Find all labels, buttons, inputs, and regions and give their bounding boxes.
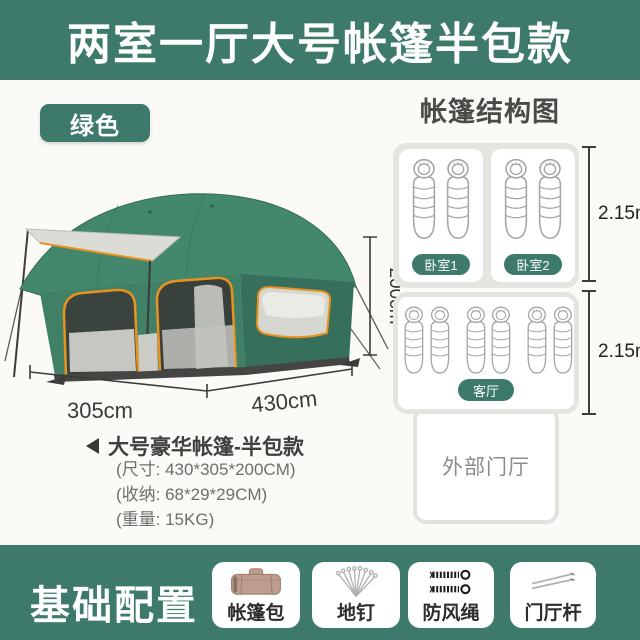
sleeping-bag-icon: [403, 303, 425, 379]
living-room-box: 客厅: [393, 292, 579, 414]
spec-weight: (重量: 15KG): [116, 507, 296, 532]
sleeping-bag-icon: [503, 158, 529, 242]
color-badge-label: 绿色: [70, 106, 120, 141]
config-item-wind-rope: 防风绳: [408, 562, 494, 628]
config-item-stakes: 地钉: [312, 562, 400, 628]
hall-pole-icon: [525, 566, 581, 598]
structure-diagram-title: 帐篷结构图: [400, 90, 580, 129]
triangle-marker-icon: [86, 438, 99, 454]
base-config-banner: 基础配置 帐篷包: [0, 545, 640, 640]
width-label: 305cm: [67, 398, 133, 423]
sleeping-bag-icon: [411, 158, 437, 242]
page-title: 两室一厅大号帐篷半包款: [67, 8, 573, 72]
bedroom-depth-line: [588, 146, 590, 282]
config-label: 帐篷包: [227, 598, 284, 625]
sleeping-bag-icon: [429, 303, 451, 379]
bedroom1-label: 卧室1: [412, 254, 470, 275]
sleeping-bag-icon: [490, 303, 512, 379]
tent-illustration: 200cm 305cm 430cm: [0, 185, 400, 430]
spec-lines: (尺寸: 430*305*200CM) (收纳: 68*29*29CM) (重量…: [116, 457, 296, 532]
exterior-hall-label: 外部门厅: [442, 451, 530, 481]
bedroom-depth-label: 2.15m: [598, 203, 640, 225]
spec-storage: (收纳: 68*29*29CM): [116, 482, 296, 507]
length-label: 430cm: [250, 386, 318, 418]
sleeping-bag-icon: [465, 303, 487, 379]
sleeping-bag-icon: [445, 158, 471, 242]
product-image-page: 两室一厅大号帐篷半包款 绿色 帐篷结构图: [0, 0, 640, 640]
header-banner: 两室一厅大号帐篷半包款: [0, 0, 640, 80]
bedroom2-label: 卧室2: [504, 254, 562, 275]
awning-pole: [14, 229, 28, 377]
living-room-label: 客厅: [458, 379, 514, 401]
spec-size: (尺寸: 430*305*200CM): [116, 457, 296, 482]
sleeping-bag-icon: [526, 303, 548, 379]
sleeping-bag-icon: [552, 303, 574, 379]
living-depth-label: 2.15m: [598, 341, 640, 363]
config-label: 地钉: [337, 598, 375, 625]
sleeping-bag-icon: [537, 158, 563, 242]
base-config-title: 基础配置: [30, 573, 198, 631]
color-badge: 绿色: [40, 104, 150, 142]
tent-bag-icon: [227, 566, 285, 598]
bedroom1-box: 卧室1: [399, 149, 483, 282]
config-item-tent-bag: 帐篷包: [212, 562, 300, 628]
config-label: 门厅杆: [524, 598, 581, 625]
wind-rope-icon: [423, 566, 479, 598]
config-label: 防风绳: [422, 598, 479, 625]
living-depth-line: [588, 290, 590, 415]
config-item-hall-pole: 门厅杆: [510, 562, 596, 628]
bedroom2-box: 卧室2: [491, 149, 575, 282]
exterior-hall-box: 外部门厅: [413, 407, 559, 524]
ground-stakes-icon: [328, 566, 384, 598]
